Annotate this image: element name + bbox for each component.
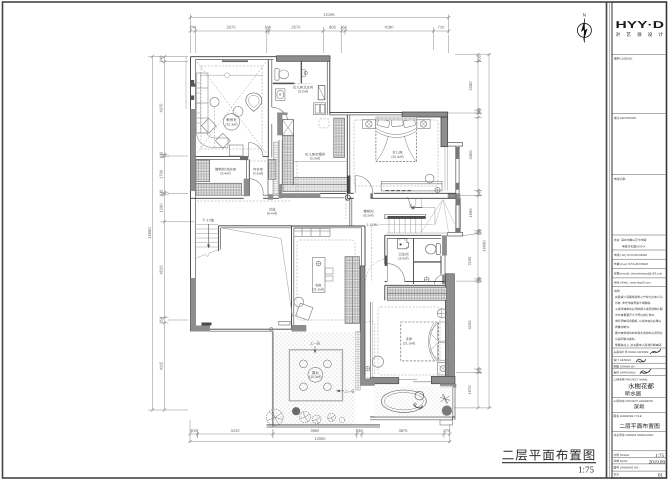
svg-text:16680: 16680	[482, 240, 487, 252]
svg-text:300: 300	[190, 428, 197, 433]
svg-text:100: 100	[158, 189, 163, 196]
svg-text:电话 (Tel) :0755-86793362: 电话 (Tel) :0755-86793362	[614, 253, 647, 257]
svg-text:250: 250	[158, 316, 163, 323]
svg-text:165: 165	[477, 367, 482, 374]
svg-text:1:75: 1:75	[578, 465, 595, 475]
svg-text:2280: 2280	[468, 81, 473, 91]
svg-text:图名 DRAWING TITLE:: 图名 DRAWING TITLE:	[614, 414, 643, 418]
svg-text:工程地址 PROJECT ADDRESS:: 工程地址 PROJECT ADDRESS:	[614, 399, 654, 403]
svg-text:日期 DATE:: 日期 DATE:	[614, 459, 629, 463]
svg-text:深圳: 深圳	[633, 404, 645, 411]
svg-text:4375: 4375	[158, 103, 163, 113]
svg-text:邮箱 (email): shenzhenhyyd@163.c: 邮箱 (email): shenzhenhyyd@163.com	[614, 271, 663, 275]
svg-text:(11.9㎡): (11.9㎡)	[312, 288, 324, 292]
svg-text:主卧: 主卧	[406, 337, 413, 341]
svg-text:设计 DESIGN:: 设计 DESIGN:	[614, 358, 632, 362]
svg-text:3875: 3875	[399, 428, 409, 433]
svg-text:(15.9㎡): (15.9㎡)	[309, 375, 321, 379]
svg-text:3450: 3450	[468, 150, 473, 160]
svg-text:3410: 3410	[231, 428, 241, 433]
svg-text:比例 SCALE:: 比例 SCALE:	[614, 453, 631, 457]
svg-text:传真 (Fax) :0755-86793913: 传真 (Fax) :0755-86793913	[614, 262, 648, 266]
svg-text:工程名称 PROJECT NAME:: 工程名称 PROJECT NAME:	[614, 377, 649, 381]
svg-text:2019.09: 2019.09	[649, 459, 666, 465]
svg-text:4180: 4180	[385, 25, 395, 30]
svg-text:2.133M: 2.133M	[366, 223, 377, 227]
svg-text:(21.9㎡): (21.9㎡)	[403, 342, 415, 346]
svg-text:图号 DRAWING NO.:: 图号 DRAWING NO.:	[614, 465, 641, 469]
svg-text:网址 (Web) : www.hyyd3.com: 网址 (Web) : www.hyyd3.com	[614, 281, 651, 285]
svg-text:听水居: 听水居	[625, 391, 642, 398]
svg-text:1700: 1700	[158, 169, 163, 179]
svg-text:16680: 16680	[147, 227, 152, 239]
svg-text:(2.6㎡): (2.6㎡)	[253, 172, 263, 176]
svg-text:(3.4㎡): (3.4㎡)	[220, 172, 230, 176]
svg-text:请所预审现场图纸, 以免改变企业确认: 请所预审现场图纸, 以免改变企业确认	[615, 319, 662, 323]
svg-text:(15.9㎡): (15.9㎡)	[391, 155, 403, 159]
svg-text:(6.4㎡): (6.4㎡)	[267, 212, 277, 216]
svg-text:说明:: 说明:	[614, 289, 621, 293]
svg-text:105: 105	[477, 228, 482, 235]
svg-text:备注 REVISIONS:: 备注 REVISIONS:	[614, 116, 637, 120]
svg-text:1:75: 1:75	[655, 453, 664, 459]
svg-text:影音室: 影音室	[226, 118, 237, 122]
svg-text:240: 240	[158, 55, 163, 62]
svg-text:1660: 1660	[468, 208, 473, 218]
svg-text:下-17踏: 下-17踏	[202, 219, 214, 223]
svg-text:710: 710	[438, 25, 445, 30]
svg-text:3370: 3370	[227, 25, 237, 30]
svg-text:(5.0㎡): (5.0㎡)	[310, 157, 320, 161]
svg-text:240: 240	[477, 189, 482, 196]
svg-text:(15.3㎡): (15.3㎡)	[225, 123, 237, 127]
svg-text:上一层: 上一层	[344, 390, 355, 394]
svg-text:140: 140	[477, 107, 482, 114]
svg-text:(6.2㎡): (6.2㎡)	[363, 214, 373, 218]
svg-text:1670: 1670	[467, 385, 472, 395]
svg-text:业主签名 OWNER SIGNATURE:: 业主签名 OWNER SIGNATURE:	[614, 433, 655, 437]
svg-text:(3.0㎡): (3.0㎡)	[298, 90, 308, 94]
svg-text:女儿房: 女儿房	[392, 151, 403, 155]
svg-text:100: 100	[264, 25, 271, 30]
svg-text:主案设计师 CHIEF DESIGN:: 主案设计师 CHIEF DESIGN:	[614, 350, 650, 354]
svg-text:4520: 4520	[158, 265, 163, 275]
svg-text:此图设计及图纸版权之产权均为本公司: 此图设计及图纸版权之产权均为本公司	[615, 295, 663, 299]
svg-text:865: 865	[329, 25, 336, 30]
svg-text:所有, 未经书面同意不得翻版。: 所有, 未经书面同意不得翻版。	[615, 301, 653, 305]
svg-text:205: 205	[477, 54, 482, 61]
svg-text:等属拟此上, 此言图本之后请仔细审阅: 等属拟此上, 此言图本之后请仔细审阅	[615, 343, 662, 347]
svg-text:1290: 1290	[158, 203, 163, 213]
svg-text:4115: 4115	[158, 361, 163, 370]
svg-text:(3.5㎡): (3.5㎡)	[398, 257, 408, 261]
svg-text:制图 DRAWN BY:: 制图 DRAWN BY:	[614, 365, 636, 369]
svg-text:图例 LEGEND:: 图例 LEGEND:	[614, 57, 633, 61]
svg-text:100: 100	[158, 151, 163, 158]
svg-text:2165: 2165	[467, 256, 472, 266]
svg-text:275: 275	[444, 428, 451, 433]
svg-text:4150: 4150	[467, 320, 472, 330]
svg-text:12060: 12060	[314, 436, 326, 441]
svg-text:2570: 2570	[292, 25, 302, 30]
svg-text:审核 APPROVED:: 审核 APPROVED:	[614, 370, 637, 374]
svg-text:N: N	[583, 13, 586, 18]
svg-text:图中有标明的材料和北选用时必须符合: 图中有标明的材料和北选用时必须符合	[615, 331, 663, 335]
svg-text:240: 240	[189, 25, 196, 30]
svg-text:工程承建单位必须依据工程现场确认图: 工程承建单位必须依据工程现场确认图	[615, 307, 663, 311]
svg-text:中所有重要尺寸不符合进行核对。: 中所有重要尺寸不符合进行核对。	[615, 313, 657, 317]
svg-text:合品同意立案料。: 合品同意立案料。	[615, 337, 637, 341]
svg-text:01: 01	[658, 473, 664, 479]
svg-text:电话记录:: 电话记录:	[614, 177, 626, 181]
svg-text:HYY·D: HYY·D	[616, 20, 665, 31]
svg-text:二层平面布置图: 二层平面布置图	[502, 449, 597, 463]
svg-text:105: 105	[477, 276, 482, 283]
svg-text:水榭花都: 水榭花都	[628, 383, 655, 391]
svg-text:地址: 深圳市南山区中华路: 地址: 深圳市南山区中华路	[614, 238, 647, 242]
svg-text:160: 160	[340, 25, 347, 30]
svg-text:上一层: 上一层	[310, 342, 321, 346]
svg-text:12195: 12195	[323, 12, 335, 17]
svg-text:电童文化园A3-07A: 电童文化园A3-07A	[622, 245, 645, 249]
svg-text:质量控制处。: 质量控制处。	[615, 325, 632, 329]
svg-text:页次: 页次	[614, 473, 620, 477]
svg-text:二层平面布置图: 二层平面布置图	[619, 423, 660, 430]
svg-text:240: 240	[356, 428, 363, 433]
svg-text:3960: 3960	[310, 428, 320, 433]
